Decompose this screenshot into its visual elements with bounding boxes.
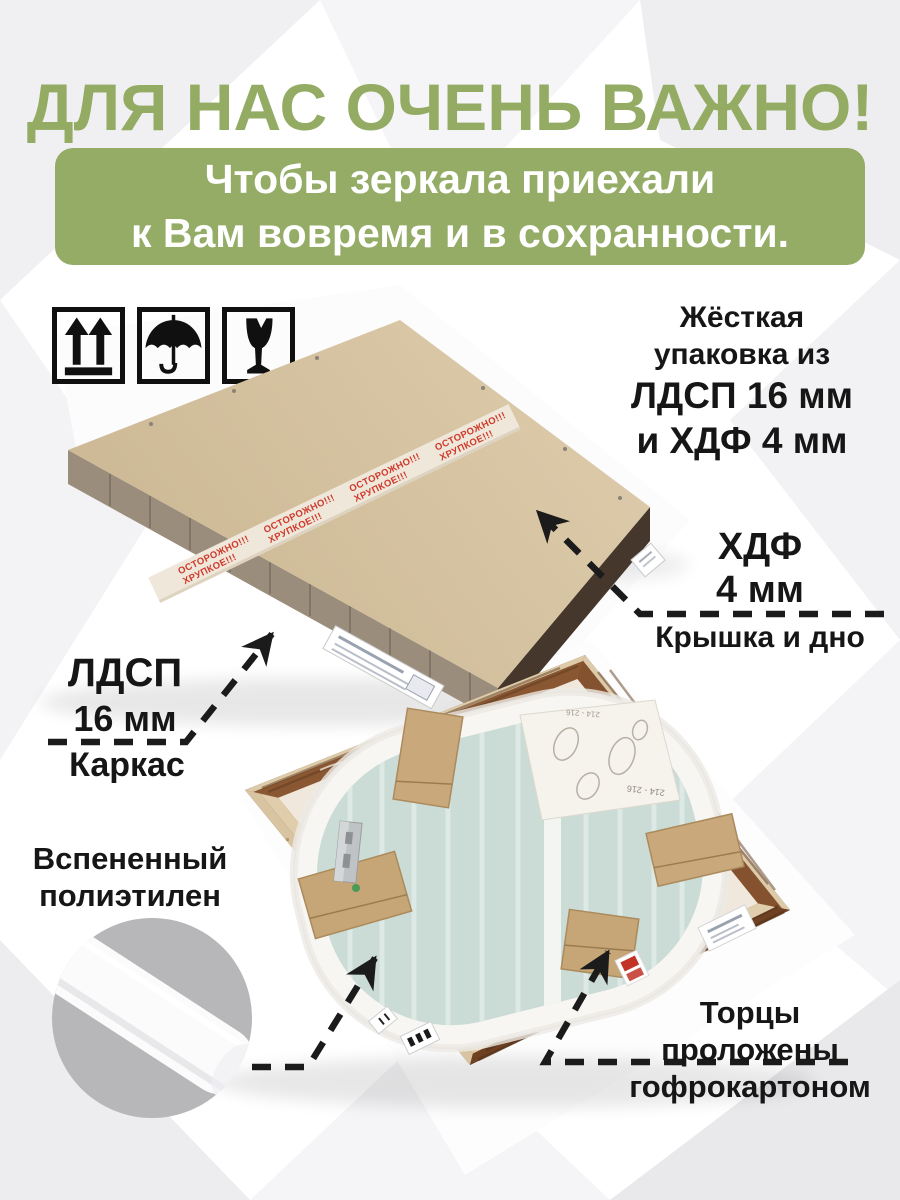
foam-line-2: полиэтилен: [28, 877, 232, 914]
rigid-line-1: Жёсткая: [618, 299, 866, 336]
ldsp-caption: Каркас: [33, 746, 221, 785]
edges-line-2: проложены: [612, 1031, 888, 1068]
hdf-material: ХДФ: [640, 526, 880, 569]
rigid-line-3: ЛДСП 16 мм: [618, 373, 866, 418]
ldsp-material: ЛДСП: [33, 650, 217, 696]
infographic-page: ДЛЯ НАС ОЧЕНЬ ВАЖНО! Чтобы зеркала приех…: [0, 0, 900, 1200]
edges-line-1: Торцы: [612, 994, 888, 1031]
hdf-caption: Крышка и дно: [632, 621, 888, 656]
ldsp-note: ЛДСП 16 мм: [33, 650, 217, 742]
foam-line-1: Вспененный: [28, 840, 232, 877]
instruction-sheet: 214 - 216 214 - 216: [520, 700, 680, 820]
rigid-packaging-note: Жёсткая упаковка из ЛДСП 16 мм и ХДФ 4 м…: [618, 299, 866, 463]
rigid-line-2: упаковка из: [618, 336, 866, 373]
hdf-note: ХДФ 4 мм: [640, 526, 880, 612]
foam-detail-inset: [0, 887, 268, 1118]
edges-note: Торцы проложены гофрокартоном: [612, 994, 888, 1105]
rigid-line-4: и ХДФ 4 мм: [618, 418, 866, 463]
edges-line-3: гофрокартоном: [612, 1068, 888, 1105]
hdf-thickness: 4 мм: [640, 569, 880, 612]
foam-note: Вспененный полиэтилен: [28, 840, 232, 914]
green-marker-dot: [352, 884, 360, 892]
ldsp-thickness: 16 мм: [33, 696, 217, 742]
